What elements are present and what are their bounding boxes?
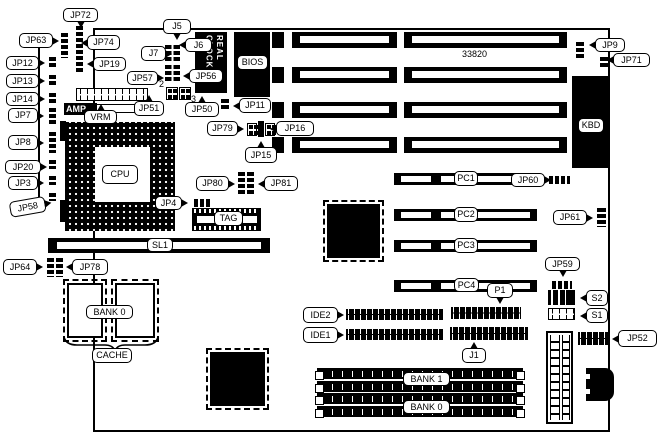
callout-pointer bbox=[37, 139, 44, 147]
jumper-block bbox=[221, 99, 229, 110]
callout-label-jp20: JP20 bbox=[5, 160, 41, 174]
jumper-block bbox=[49, 132, 56, 153]
jumper-pin bbox=[168, 95, 172, 99]
callout-pointer bbox=[36, 263, 43, 271]
callout-pointer bbox=[337, 331, 344, 339]
simm-clip bbox=[315, 396, 324, 405]
isa-slot-stripe bbox=[300, 106, 389, 113]
callout-pointer bbox=[37, 179, 44, 187]
callout-label-jp8: JP8 bbox=[8, 135, 38, 150]
callout-label-j1: J1 bbox=[462, 348, 486, 363]
callout-label-jp50: JP50 bbox=[185, 102, 219, 117]
isa-slot-stripe bbox=[412, 36, 559, 43]
jumper-block bbox=[47, 258, 63, 277]
callout-label-jp79: JP79 bbox=[207, 121, 238, 136]
jumper-block bbox=[76, 26, 83, 72]
callout-label-ide1: IDE1 bbox=[303, 327, 338, 343]
jumper-block bbox=[49, 108, 56, 125]
callout-label-jp7: JP7 bbox=[8, 108, 38, 123]
jumper-block bbox=[49, 93, 56, 104]
jumper-pin bbox=[173, 95, 177, 99]
callout-label-bank-0: BANK 0 bbox=[403, 400, 450, 414]
callout-pointer bbox=[496, 297, 504, 304]
simm-clip bbox=[315, 371, 324, 380]
callout-label-cache: CACHE bbox=[92, 348, 132, 363]
isa-slot-stripe bbox=[412, 141, 559, 148]
power-connector bbox=[546, 331, 573, 424]
callout-label-bank-1: BANK 1 bbox=[403, 372, 450, 386]
pci-slot-stripe bbox=[401, 283, 431, 289]
socket-lever-tab bbox=[60, 200, 66, 222]
jumper-block bbox=[576, 42, 584, 59]
callout-label-j5: J5 bbox=[163, 19, 191, 34]
callout-label-p1: P1 bbox=[487, 283, 513, 298]
callout-label-j7: J7 bbox=[141, 46, 166, 61]
callout-pointer bbox=[228, 180, 235, 188]
callout-pointer bbox=[97, 104, 105, 111]
s2-connector bbox=[548, 290, 575, 305]
callout-pointer bbox=[157, 74, 164, 82]
callout-label-jp15: JP15 bbox=[245, 147, 277, 163]
power-pin-column bbox=[550, 335, 560, 420]
j1-connector bbox=[450, 327, 528, 340]
isa-slot-end bbox=[272, 102, 284, 118]
jumper-block bbox=[552, 281, 572, 289]
callout-pointer bbox=[81, 39, 88, 47]
callout-label-jp63: JP63 bbox=[19, 33, 53, 48]
jumper-pin bbox=[181, 89, 185, 93]
simm-clip bbox=[516, 371, 525, 380]
callout-pointer bbox=[270, 125, 277, 133]
callout-label-j6: J6 bbox=[185, 38, 212, 52]
qfp-chip bbox=[210, 352, 265, 406]
callout-pointer bbox=[257, 141, 265, 148]
isa-slot-stripe bbox=[300, 71, 389, 78]
callout-pointer bbox=[237, 125, 244, 133]
din-notch bbox=[586, 389, 590, 394]
callout-label-jp74: JP74 bbox=[87, 35, 120, 50]
ide2-connector bbox=[346, 309, 443, 320]
callout-label-tag: TAG bbox=[214, 211, 243, 226]
ide1-connector bbox=[346, 329, 443, 340]
callout-label-jp80: JP80 bbox=[196, 176, 229, 191]
simm-clip bbox=[315, 384, 324, 393]
callout-pointer bbox=[38, 95, 45, 103]
vrm-header bbox=[76, 88, 148, 101]
callout-label-jp56: JP56 bbox=[189, 69, 223, 83]
isa-slot-end bbox=[272, 32, 284, 48]
callout-pointer bbox=[40, 163, 47, 171]
callout-pointer bbox=[165, 50, 172, 58]
callout-label-jp58: JP58 bbox=[9, 196, 47, 218]
callout-pointer bbox=[470, 342, 478, 349]
tag-chip-pins bbox=[194, 226, 259, 230]
jumper-pin bbox=[186, 89, 190, 93]
callout-label-jp13: JP13 bbox=[6, 74, 39, 88]
motherboard-diagram: AMP REAL CLOCK JP72JP63JP74J5J6J7JP12JP1… bbox=[0, 0, 657, 434]
callout-pointer bbox=[66, 263, 73, 271]
jumper-block bbox=[49, 176, 56, 185]
p1-connector bbox=[451, 307, 521, 319]
jumper-pin bbox=[168, 89, 172, 93]
callout-pointer bbox=[145, 95, 153, 102]
jumper-block bbox=[165, 65, 180, 83]
jumper-block bbox=[179, 87, 191, 100]
isa-slot-stripe bbox=[412, 106, 559, 113]
callout-pointer bbox=[612, 335, 619, 343]
callout-label-jp51: JP51 bbox=[134, 101, 164, 116]
callout-pointer bbox=[181, 199, 188, 207]
jumper-block bbox=[49, 57, 56, 68]
callout-label-vrm: VRM bbox=[84, 110, 117, 124]
callout-label-jp11: JP11 bbox=[239, 98, 271, 113]
callout-label-pc4: PC4 bbox=[454, 278, 479, 292]
callout-pointer bbox=[37, 112, 44, 120]
callout-label-jp14: JP14 bbox=[6, 92, 39, 106]
callout-label-jp61: JP61 bbox=[553, 210, 587, 225]
callout-label-jp19: JP19 bbox=[93, 57, 126, 71]
isa-slot-stripe bbox=[412, 71, 559, 78]
callout-label-s2: S2 bbox=[586, 290, 608, 306]
callout-label-jp59: JP59 bbox=[545, 257, 580, 271]
jumper-pin bbox=[181, 95, 185, 99]
simm-clip bbox=[516, 384, 525, 393]
jumper-block bbox=[258, 121, 264, 137]
keyboard-din-connector bbox=[586, 368, 614, 401]
callout-label-s1: S1 bbox=[586, 308, 608, 323]
isa-slot-stripe bbox=[300, 141, 389, 148]
callout-pointer bbox=[44, 199, 52, 208]
socket-lever-tab bbox=[60, 121, 66, 141]
pci-slot-stripe bbox=[401, 212, 431, 218]
jumper-block bbox=[549, 176, 570, 184]
callout-pointer bbox=[38, 77, 45, 85]
jumper-pin bbox=[249, 131, 253, 135]
jumper-block bbox=[49, 75, 56, 86]
callout-label-bios: BIOS bbox=[237, 55, 268, 70]
jumper-block bbox=[247, 123, 257, 136]
callout-label-jp52: JP52 bbox=[618, 330, 657, 347]
amp-text: AMP bbox=[66, 104, 86, 114]
pci-slot-stripe bbox=[401, 243, 431, 249]
callout-label-jp12: JP12 bbox=[6, 56, 39, 70]
jumper-block bbox=[238, 172, 254, 196]
callout-pointer bbox=[544, 176, 551, 184]
callout-pointer bbox=[87, 60, 94, 68]
simm-clip bbox=[315, 409, 324, 418]
callout-pointer bbox=[258, 180, 265, 188]
simm-clip bbox=[516, 396, 525, 405]
callout-pointer bbox=[233, 102, 240, 110]
s1-connector bbox=[548, 308, 575, 320]
callout-label-ide2: IDE2 bbox=[303, 307, 338, 323]
callout-pointer bbox=[38, 59, 45, 67]
callout-label-jp4: JP4 bbox=[155, 196, 182, 210]
callout-pointer bbox=[52, 37, 59, 45]
callout-label-jp64: JP64 bbox=[3, 259, 37, 275]
jumper-block bbox=[597, 208, 606, 227]
jumper-pin bbox=[186, 95, 190, 99]
jumper-block bbox=[49, 160, 56, 169]
callout-label-pc3: PC3 bbox=[454, 238, 478, 253]
jp52-connector bbox=[578, 332, 608, 345]
callout-pointer bbox=[77, 21, 85, 28]
simm-clip bbox=[516, 409, 525, 418]
jumper-pin bbox=[249, 125, 253, 129]
callout-label-kbd: KBD bbox=[578, 118, 604, 133]
callout-label-jp60: JP60 bbox=[511, 173, 545, 187]
callout-pointer bbox=[580, 312, 587, 320]
callout-label-jp16: JP16 bbox=[276, 121, 314, 136]
callout-pointer bbox=[337, 311, 344, 319]
callout-label-pc2: PC2 bbox=[454, 207, 478, 222]
callout-pointer bbox=[183, 72, 190, 80]
callout-pointer bbox=[607, 56, 614, 64]
callout-label-bank-0: BANK 0 bbox=[86, 305, 133, 319]
jumper-block bbox=[194, 199, 210, 207]
callout-label-jp3: JP3 bbox=[8, 176, 38, 190]
callout-pointer bbox=[179, 41, 186, 49]
callout-label-jp72: JP72 bbox=[63, 8, 98, 22]
callout-label-jp71: JP71 bbox=[613, 53, 650, 67]
callout-pointer bbox=[559, 270, 567, 277]
din-notch bbox=[586, 374, 590, 379]
tag-chip-window bbox=[243, 216, 257, 223]
pci-slot-stripe bbox=[401, 176, 431, 182]
callout-pointer bbox=[580, 294, 587, 302]
jumper-block bbox=[61, 33, 68, 58]
callout-pointer bbox=[586, 214, 593, 222]
callout-label-jp57: JP57 bbox=[127, 71, 158, 85]
callout-pointer bbox=[173, 33, 181, 40]
callout-label-jp9: JP9 bbox=[595, 38, 625, 52]
callout-label-jp78: JP78 bbox=[72, 259, 108, 275]
callout-label-pc1: PC1 bbox=[454, 171, 478, 186]
callout-label-cpu: CPU bbox=[102, 165, 138, 184]
callout-label-jp81: JP81 bbox=[264, 176, 298, 191]
power-pin-column bbox=[562, 335, 570, 420]
qfp-chip bbox=[327, 204, 380, 258]
callout-pointer bbox=[198, 96, 206, 103]
callout-pointer bbox=[589, 41, 596, 49]
jumper-block bbox=[166, 87, 178, 100]
isa-slot-stripe bbox=[300, 36, 389, 43]
callout-label-sl1: SL1 bbox=[147, 238, 173, 252]
isa-slot-end bbox=[272, 67, 284, 83]
jumper-pin bbox=[173, 89, 177, 93]
diagram-text-33820: 33820 bbox=[462, 50, 487, 59]
